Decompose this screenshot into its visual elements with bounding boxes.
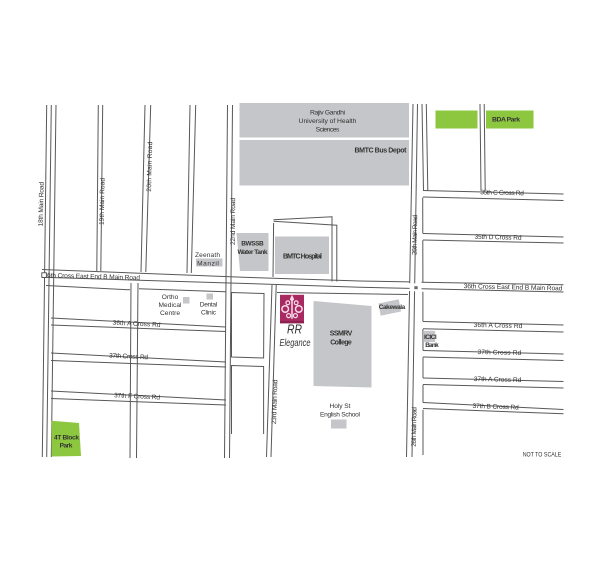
svg-text:Park: Park — [60, 443, 73, 450]
svg-text:Water Tank: Water Tank — [238, 249, 268, 256]
svg-text:College: College — [330, 340, 352, 347]
svg-text:ICICI: ICICI — [424, 334, 437, 341]
svg-text:BDA Park: BDA Park — [492, 117, 520, 124]
svg-text:26th Main Road: 26th Main Road — [412, 215, 420, 255]
svg-text:English School: English School — [320, 412, 361, 419]
svg-text:University of Health: University of Health — [299, 118, 357, 125]
svg-text:Bank: Bank — [425, 342, 439, 349]
svg-text:Manzil: Manzil — [197, 261, 219, 268]
svg-text:Medical: Medical — [159, 302, 183, 309]
svg-text:Cakewala: Cakewala — [379, 304, 406, 311]
svg-text:BMTC Bus Depot: BMTC Bus Depot — [355, 147, 408, 154]
svg-text:NOT TO SCALE: NOT TO SCALE — [523, 452, 562, 459]
svg-text:SSMRV: SSMRV — [330, 331, 353, 338]
svg-text:Ortho: Ortho — [162, 294, 179, 301]
svg-text:4T Block: 4T Block — [54, 435, 79, 442]
svg-text:Elegance: Elegance — [280, 337, 311, 349]
svg-text:18th Main Road: 18th Main Road — [38, 182, 46, 227]
svg-text:Dental: Dental — [200, 302, 218, 309]
svg-text:BWSSB: BWSSB — [241, 240, 264, 247]
svg-text:35th C Cross Rd: 35th C Cross Rd — [480, 189, 524, 197]
svg-text:22nd Main Road: 22nd Main Road — [230, 198, 237, 245]
svg-text:Centre: Centre — [160, 310, 180, 317]
svg-text:Clinic: Clinic — [201, 310, 217, 317]
svg-text:Holy St: Holy St — [330, 403, 351, 410]
svg-text:20th Main Road: 20th Main Road — [146, 141, 154, 191]
svg-text:19th Main Road: 19th Main Road — [99, 178, 107, 225]
svg-text:Zeenath: Zeenath — [195, 252, 220, 259]
svg-text:Sciences: Sciences — [316, 126, 340, 133]
svg-text:23rd Main Road: 23rd Main Road — [271, 379, 279, 424]
svg-text:BMTC Hospital: BMTC Hospital — [283, 253, 322, 260]
svg-text:26th Main Road: 26th Main Road — [411, 407, 419, 447]
svg-text:37th Cross Rd: 37th Cross Rd — [477, 349, 521, 357]
svg-text:Rajiv Gandhi: Rajiv Gandhi — [310, 110, 345, 117]
svg-text:35th D Cross Rd: 35th D Cross Rd — [474, 234, 521, 242]
svg-text:36th A Cross Rd: 36th A Cross Rd — [474, 322, 523, 330]
svg-text:37th A Cross Rd: 37th A Cross Rd — [474, 376, 522, 384]
svg-text:RR: RR — [287, 322, 302, 337]
